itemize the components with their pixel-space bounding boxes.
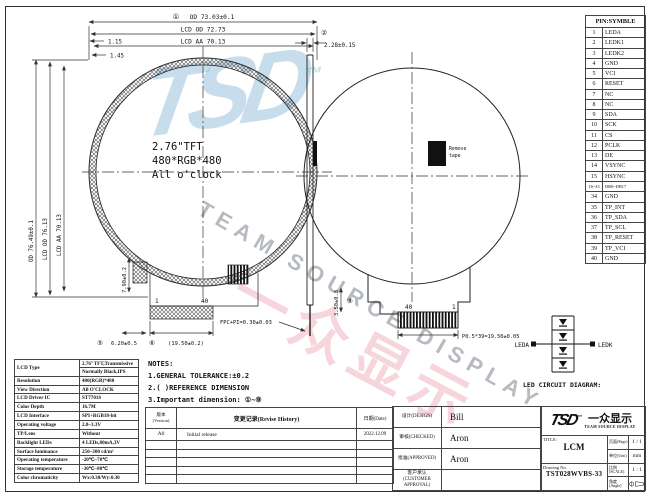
pin-table-row: 37TP_SCL — [586, 223, 645, 233]
pin-table-row: 8NC — [586, 100, 645, 110]
pin-table-row: 35TP_INT — [586, 203, 645, 213]
pin-number: 8 — [586, 100, 603, 109]
angle-row: 角度(Angle) — [608, 477, 645, 490]
datasheet-page: TSD™ 一众显示 TEAM SOURCE DISPLAY — [0, 0, 650, 499]
revision-cell: 2022.12.09 — [357, 429, 393, 440]
pin-symbol: VCI — [603, 69, 645, 78]
pin-symbol: PCLK — [603, 141, 645, 150]
revision-row — [146, 458, 393, 467]
pin-symbol: TP_SCL — [603, 223, 645, 232]
spec-label: LCD Type — [15, 360, 80, 376]
sig-row-approved: 批准(APPROVED) Aron — [393, 449, 541, 470]
spec-row: Backlight LEDs4 LEDs,80mA,3V — [15, 438, 138, 447]
pin-table: PIN:SYMBLE 1LEDA2LEDK13LEDK24GND5VCI6RES… — [585, 15, 646, 264]
customer-approval-label: 客户承认(CUSTOMER APPROVAL) — [393, 470, 442, 490]
page-value: 1 / 1 — [629, 436, 645, 449]
projection-symbol — [629, 477, 645, 490]
spec-value: 2.8~3.3V — [80, 421, 138, 429]
pin-number: 14 — [586, 161, 603, 170]
revision-cell — [177, 475, 357, 483]
title-value: LCM — [543, 442, 605, 452]
pin-number: 7 — [586, 90, 603, 99]
pin-table-row: 10SCK — [586, 120, 645, 130]
title-cell: TITLE: LCM — [541, 436, 607, 463]
design-label: 设计(DESIGN) — [393, 407, 442, 427]
spec-label: Surface luminance — [15, 448, 80, 456]
checked-label: 审核(CHECKED) — [393, 428, 442, 448]
scale-row: 比例(SCALE) 1 : 1 — [608, 464, 645, 478]
spec-table: LCD Type 2.76"TFT,Transmissive Normally … — [14, 359, 139, 483]
pin-table-row: 36TP_SDA — [586, 213, 645, 223]
company-name-cn: 一众显示 — [588, 414, 632, 425]
pin-table-row: 3LEDK2 — [586, 49, 645, 59]
pin-table-header: PIN:SYMBLE — [586, 16, 645, 28]
revision-cell — [177, 441, 357, 449]
revision-cell — [146, 458, 177, 466]
pin-table-row: 11CS — [586, 131, 645, 141]
spec-value: 480(RGB)*480 — [80, 377, 138, 385]
pin-symbol: NC — [603, 100, 645, 109]
note-2: 2.( )REFERENCE DIMENSION — [148, 382, 262, 394]
pin-number: 34 — [586, 192, 603, 201]
spec-label: Operating voltage — [15, 421, 80, 429]
unit-label: 单位(Unit) — [608, 450, 629, 463]
pin-symbol: GND — [603, 59, 645, 68]
pin-number: 36 — [586, 213, 603, 222]
pin-table-row: 6RESET — [586, 79, 645, 89]
pin-number: 10 — [586, 120, 603, 129]
spec-label: TP/Lens — [15, 430, 80, 438]
spec-value: Wx:0.30/Wy:0.30 — [80, 474, 138, 482]
pin-symbol: TP_SDA — [603, 213, 645, 222]
revision-cell: Initial release — [177, 429, 357, 440]
sig-row-design: 设计(DESIGN) Bill — [393, 407, 541, 428]
checked-value: Aron — [442, 428, 541, 448]
pin-symbol: GND — [603, 192, 645, 201]
pin-symbol: DE — [603, 151, 645, 160]
spec-row: LCD InterfaceSPI+RGB18-bit — [15, 411, 138, 420]
pin-symbol: RESET — [603, 79, 645, 88]
revision-cell — [357, 467, 393, 475]
pin-number: 4 — [586, 59, 603, 68]
pin-symbol: LEDA — [603, 28, 645, 37]
revision-cell — [146, 450, 177, 458]
spec-label: Resolution — [15, 377, 80, 385]
revision-cell — [146, 441, 177, 449]
notes-title: NOTES: — [148, 358, 262, 370]
revision-row — [146, 467, 393, 476]
title-block: TSD™ 一众显示 TEAM SOURCE DISPLAY TITLE: LCM… — [540, 406, 646, 491]
pin-number: 15 — [586, 172, 603, 181]
spec-value: Without — [80, 430, 138, 438]
pin-table-row: 15HSYNC — [586, 172, 645, 182]
pin-table-row: 9SDA — [586, 110, 645, 120]
pin-table-row: 16~33DB0~DB17 — [586, 182, 645, 192]
pin-number: 38 — [586, 233, 603, 242]
pin-table-row: 40GND — [586, 254, 645, 263]
pin-symbol: LEDK1 — [603, 38, 645, 47]
pin-table-row: 7NC — [586, 90, 645, 100]
pin-number: 6 — [586, 79, 603, 88]
spec-label: LCD Interface — [15, 412, 80, 420]
pin-table-row: 38TP_RESET — [586, 233, 645, 243]
pin-number: 1 — [586, 28, 603, 37]
spec-value: 4 LEDs,80mA,3V — [80, 439, 138, 447]
pin-table-row: 14VSYNC — [586, 161, 645, 171]
pin-number: 11 — [586, 131, 603, 140]
pin-number: 9 — [586, 110, 603, 119]
revision-cell — [177, 450, 357, 458]
pin-number: 16~33 — [586, 182, 603, 191]
design-value: Bill — [442, 407, 541, 427]
pin-table-row: 13DE — [586, 151, 645, 161]
pin-table-row: 4GND — [586, 59, 645, 69]
spec-label: Backlight LEDs — [15, 439, 80, 447]
pin-number: 5 — [586, 69, 603, 78]
revision-cell — [357, 458, 393, 466]
pin-symbol: GND — [603, 254, 645, 263]
spec-row: Color chromaticityWx:0.30/Wy:0.30 — [15, 473, 138, 482]
spec-label: View Direction — [15, 386, 80, 394]
spec-row: Operating temperature-20℃~70℃ — [15, 455, 138, 464]
revision-cell — [357, 441, 393, 449]
revision-cell: A0 — [146, 429, 177, 440]
revision-row — [146, 450, 393, 459]
revision-cell — [146, 475, 177, 483]
revision-cell — [177, 458, 357, 466]
pin-number: 39 — [586, 244, 603, 253]
spec-row: LCD Driver ICST7701S — [15, 393, 138, 402]
note-3: 3.Important dimension: ①~⑨ — [148, 394, 262, 406]
revision-header: 版本(Version) 变更记录(Revise History) 日期(Date… — [146, 408, 393, 429]
revision-row: A0Initial release2022.12.09 — [146, 429, 393, 441]
pin-symbol: HSYNC — [603, 172, 645, 181]
customer-approval-value — [442, 470, 541, 490]
revision-row — [146, 475, 393, 483]
spec-value: Normally Black,IPS — [80, 367, 138, 375]
pin-number: 3 — [586, 49, 603, 58]
scale-label: 比例(SCALE) — [608, 464, 629, 477]
spec-row-lcd-type: LCD Type 2.76"TFT,Transmissive Normally … — [15, 360, 138, 376]
pin-number: 13 — [586, 151, 603, 160]
spec-label: Color Depth — [15, 403, 80, 411]
spec-row: Storage temperature-30℃~80℃ — [15, 464, 138, 473]
spec-label: Operating temperature — [15, 456, 80, 464]
pin-symbol: TP_VCI — [603, 244, 645, 253]
spec-value: ST7701S — [80, 394, 138, 402]
pin-table-row: 2LEDK1 — [586, 38, 645, 48]
spec-row: TP/LensWithout — [15, 429, 138, 438]
revision-cell — [177, 467, 357, 475]
revision-col-version: 版本(Version) — [146, 408, 177, 428]
revision-table: 版本(Version) 变更记录(Revise History) 日期(Date… — [145, 407, 394, 484]
revision-cell — [357, 475, 393, 483]
approved-value: Aron — [442, 449, 541, 469]
spec-value: All O'CLOCK — [80, 386, 138, 394]
page-row: 页面(Page) 1 / 1 — [608, 436, 645, 450]
pin-symbol: SDA — [603, 110, 645, 119]
scale-value: 1 : 1 — [629, 464, 645, 477]
unit-row: 单位(Unit) mm — [608, 450, 645, 464]
spec-value: 16.7M — [80, 403, 138, 411]
pin-table-row: 5VCI — [586, 69, 645, 79]
page-label: 页面(Page) — [608, 436, 629, 449]
pin-symbol: SCK — [603, 120, 645, 129]
company-name-en: TEAM SOURCE DISPLAY — [584, 425, 635, 429]
spec-value: -30℃~80℃ — [80, 465, 138, 473]
revision-row — [146, 441, 393, 450]
approved-label: 批准(APPROVED) — [393, 449, 442, 469]
pin-symbol: LEDK2 — [603, 49, 645, 58]
revision-cell — [146, 467, 177, 475]
unit-value: mm — [629, 450, 645, 463]
spec-value: 250~300 cd/m² — [80, 448, 138, 456]
pin-symbol: CS — [603, 131, 645, 140]
company-logo: TSD™ 一众显示 TEAM SOURCE DISPLAY — [541, 407, 645, 436]
spec-label: Storage temperature — [15, 465, 80, 473]
angle-label: 角度(Angle) — [608, 477, 629, 490]
pin-number: 37 — [586, 223, 603, 232]
spec-value: -20℃~70℃ — [80, 456, 138, 464]
pin-number: 35 — [586, 203, 603, 212]
revision-cell — [357, 450, 393, 458]
pin-number: 2 — [586, 38, 603, 47]
revision-col-date: 日期(Date) — [357, 408, 393, 428]
pin-table-row: 12PCLK — [586, 141, 645, 151]
spec-row: Color Depth16.7M — [15, 402, 138, 411]
drawing-no-cell: Drawing No. TST028WVBS-33 — [541, 463, 607, 491]
spec-row: Surface luminance250~300 cd/m² — [15, 447, 138, 456]
pin-table-row: 39TP_VCI — [586, 244, 645, 254]
pin-table-row: 1LEDA — [586, 28, 645, 38]
pin-number: 40 — [586, 254, 603, 263]
pin-number: 12 — [586, 141, 603, 150]
note-1: 1.GENERAL TOLERANCE:±0.2 — [148, 370, 262, 382]
drawing-no-value: TST028WVBS-33 — [543, 470, 605, 478]
spec-row: Resolution480(RGB)*480 — [15, 376, 138, 385]
pin-symbol: TP_RESET — [603, 233, 645, 242]
sig-row-customer: 客户承认(CUSTOMER APPROVAL) — [393, 470, 541, 490]
spec-row: Operating voltage2.8~3.3V — [15, 420, 138, 429]
spec-label: Color chromaticity — [15, 474, 80, 482]
pin-table-row: 34GND — [586, 192, 645, 202]
spec-row: View DirectionAll O'CLOCK — [15, 385, 138, 394]
pin-symbol: DB0~DB17 — [603, 182, 645, 191]
sig-row-checked: 审核(CHECKED) Aron — [393, 428, 541, 449]
notes-block: NOTES: 1.GENERAL TOLERANCE:±0.2 2.( )REF… — [148, 358, 262, 406]
pin-symbol: TP_INT — [603, 203, 645, 212]
spec-label: LCD Driver IC — [15, 394, 80, 402]
revision-col-history: 变更记录(Revise History) — [177, 408, 357, 428]
spec-value: 2.76"TFT,Transmissive — [80, 360, 138, 367]
tsd-logo-mark: TSD™ — [548, 412, 583, 430]
pin-symbol: NC — [603, 90, 645, 99]
pin-symbol: VSYNC — [603, 161, 645, 170]
spec-value: SPI+RGB18-bit — [80, 412, 138, 420]
signature-table: 设计(DESIGN) Bill 审核(CHECKED) Aron 批准(APPR… — [392, 406, 542, 491]
